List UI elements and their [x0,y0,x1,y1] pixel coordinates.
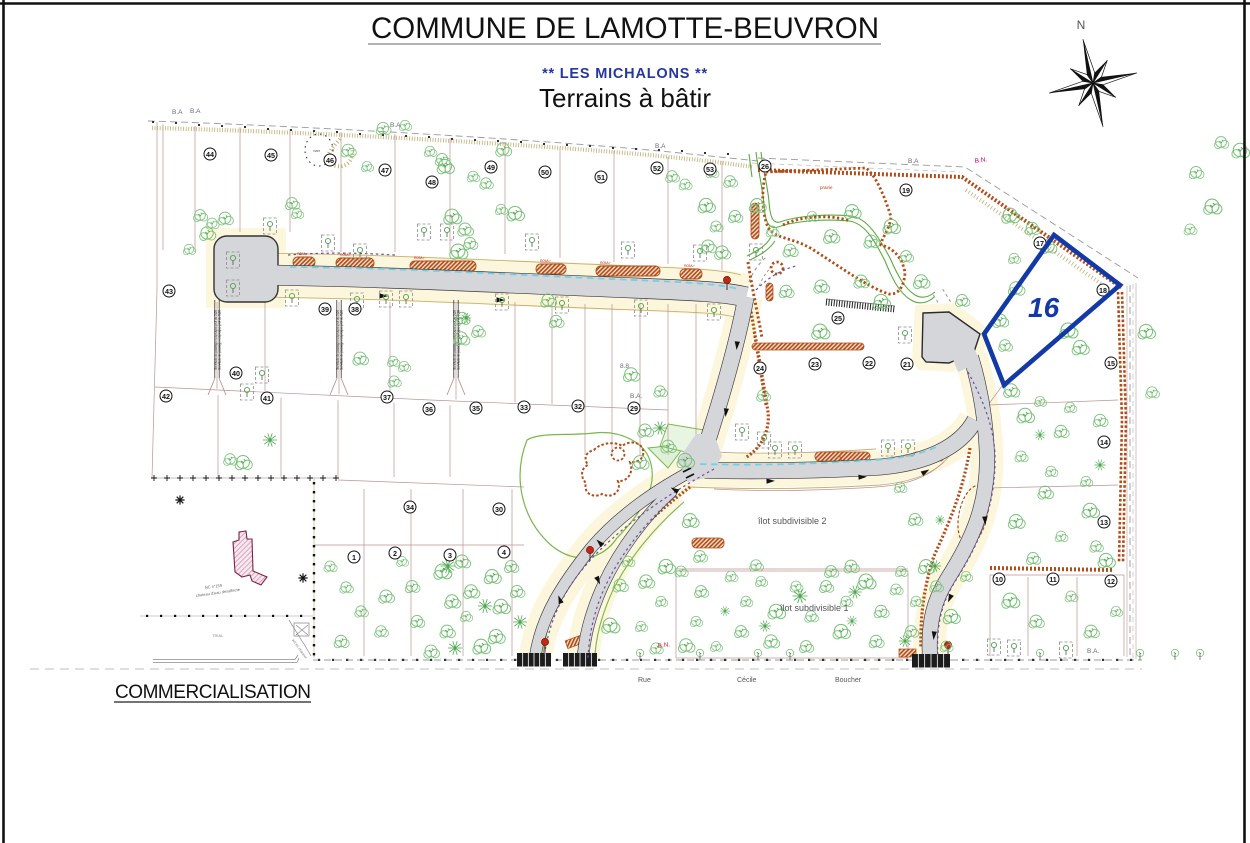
svg-text:30: 30 [495,505,503,514]
svg-text:42: 42 [162,392,170,401]
svg-text:10: 10 [995,575,1003,584]
svg-text:35: 35 [472,404,480,413]
svg-text:33: 33 [520,403,528,412]
svg-text:40: 40 [232,369,240,378]
svg-text:COMMUNE DE LAMOTTE-BEUVRON: COMMUNE DE LAMOTTE-BEUVRON [371,12,879,45]
svg-text:43: 43 [165,287,173,296]
svg-text:Rue: Rue [638,677,651,684]
svg-text:46: 46 [326,156,334,165]
svg-text:TRIAL: TRIAL [212,633,224,638]
svg-text:21: 21 [903,360,911,369]
svg-text:Servitude de passage reciproqu: Servitude de passage reciproque prof de … [339,310,343,370]
svg-text:14: 14 [1100,438,1108,447]
svg-text:15: 15 [1107,359,1115,368]
svg-text:Terrains à bâtir: Terrains à bâtir [539,83,711,113]
svg-text:52: 52 [653,164,661,173]
svg-text:12: 12 [1107,577,1115,586]
svg-text:49: 49 [487,163,495,172]
svg-text:44: 44 [206,150,214,159]
svg-text:41: 41 [263,394,271,403]
svg-text:8.8: 8.8 [620,363,629,370]
svg-text:53: 53 [706,165,714,174]
svg-text:R05A r: R05A r [684,264,696,268]
svg-text:34: 34 [406,503,414,512]
svg-text:45: 45 [267,151,275,160]
svg-text:2: 2 [393,549,397,558]
svg-text:Servitude de passage reciproqu: Servitude de passage reciproque prof de … [217,310,221,370]
svg-text:B.A.: B.A. [1087,648,1099,655]
svg-text:19: 19 [902,186,910,195]
svg-text:11: 11 [1049,575,1057,584]
svg-text:R05A r: R05A r [540,259,552,263]
svg-text:29: 29 [630,404,638,413]
svg-text:R05A r: R05A r [600,261,612,265]
svg-text:47: 47 [381,166,389,175]
svg-text:B.A.: B.A. [630,393,642,400]
svg-text:18: 18 [1099,286,1107,295]
svg-text:B.A: B.A [655,143,666,150]
svg-text:13: 13 [1100,518,1108,527]
svg-text:mare: mare [313,149,320,153]
svg-text:Boucher: Boucher [835,677,862,684]
svg-text:B.A: B.A [390,122,401,129]
svg-text:32: 32 [574,402,582,411]
svg-text:25: 25 [834,314,842,323]
svg-text:26: 26 [761,162,769,171]
svg-text:N: N [1077,18,1086,32]
svg-text:36: 36 [425,405,433,414]
svg-text:Cécile: Cécile [737,677,757,684]
svg-text:17: 17 [1036,239,1044,248]
svg-text:23: 23 [811,360,819,369]
svg-text:B.A: B.A [190,108,201,115]
svg-text:îlot subdivisible 1: îlot subdivisible 1 [779,603,849,613]
svg-text:prairie: prairie [820,185,833,190]
svg-text:24: 24 [756,364,764,373]
svg-text:3: 3 [448,551,452,560]
svg-text:4: 4 [502,548,506,557]
svg-text:51: 51 [597,173,605,182]
svg-text:50: 50 [541,168,549,177]
svg-text:R05A r: R05A r [414,256,426,260]
svg-text:B.A: B.A [908,158,919,165]
svg-text:1: 1 [352,553,356,562]
svg-text:16: 16 [1028,292,1060,323]
svg-text:Servitude de passage reciproqu: Servitude de passage reciproque prof de … [456,310,460,370]
svg-text:îlot subdivisible 2: îlot subdivisible 2 [757,516,827,526]
svg-text:22: 22 [865,359,873,368]
svg-text:38: 38 [351,305,359,314]
svg-text:COMMERCIALISATION: COMMERCIALISATION [115,682,311,703]
svg-text:B.A: B.A [172,109,183,116]
svg-text:39: 39 [321,305,329,314]
svg-text:37: 37 [383,393,391,402]
svg-text:** LES MICHALONS **: ** LES MICHALONS ** [542,66,708,82]
svg-text:48: 48 [428,178,436,187]
